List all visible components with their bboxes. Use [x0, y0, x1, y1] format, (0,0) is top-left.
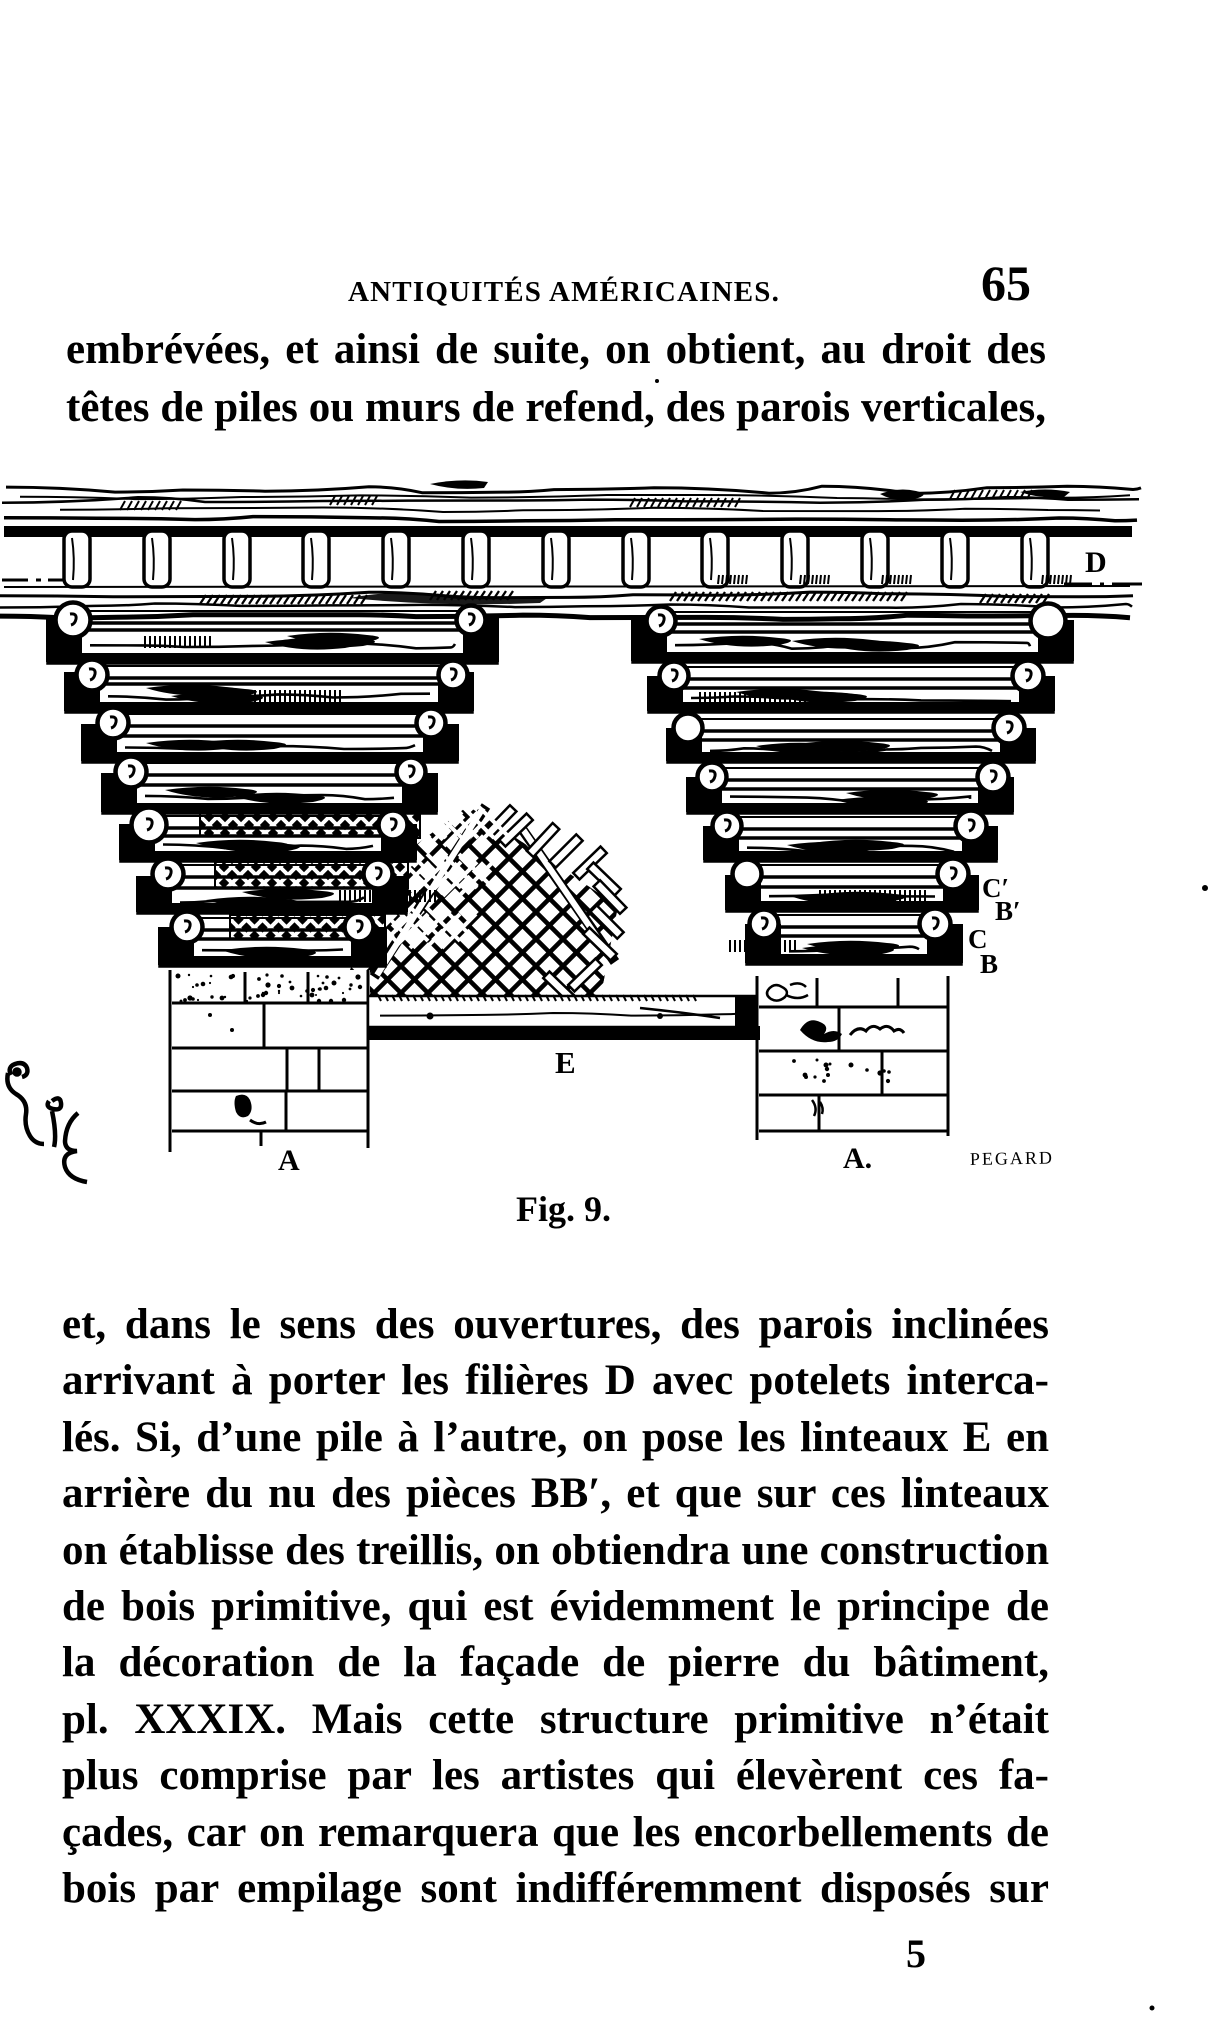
svg-text:D: D: [1085, 546, 1107, 579]
svg-text:E: E: [555, 1045, 576, 1080]
svg-text:A.: A.: [843, 1142, 872, 1175]
svg-text:B′: B′: [995, 896, 1021, 926]
svg-text:PEGARD: PEGARD: [970, 1148, 1054, 1169]
svg-text:A: A: [278, 1144, 300, 1177]
svg-text:B: B: [980, 949, 998, 979]
